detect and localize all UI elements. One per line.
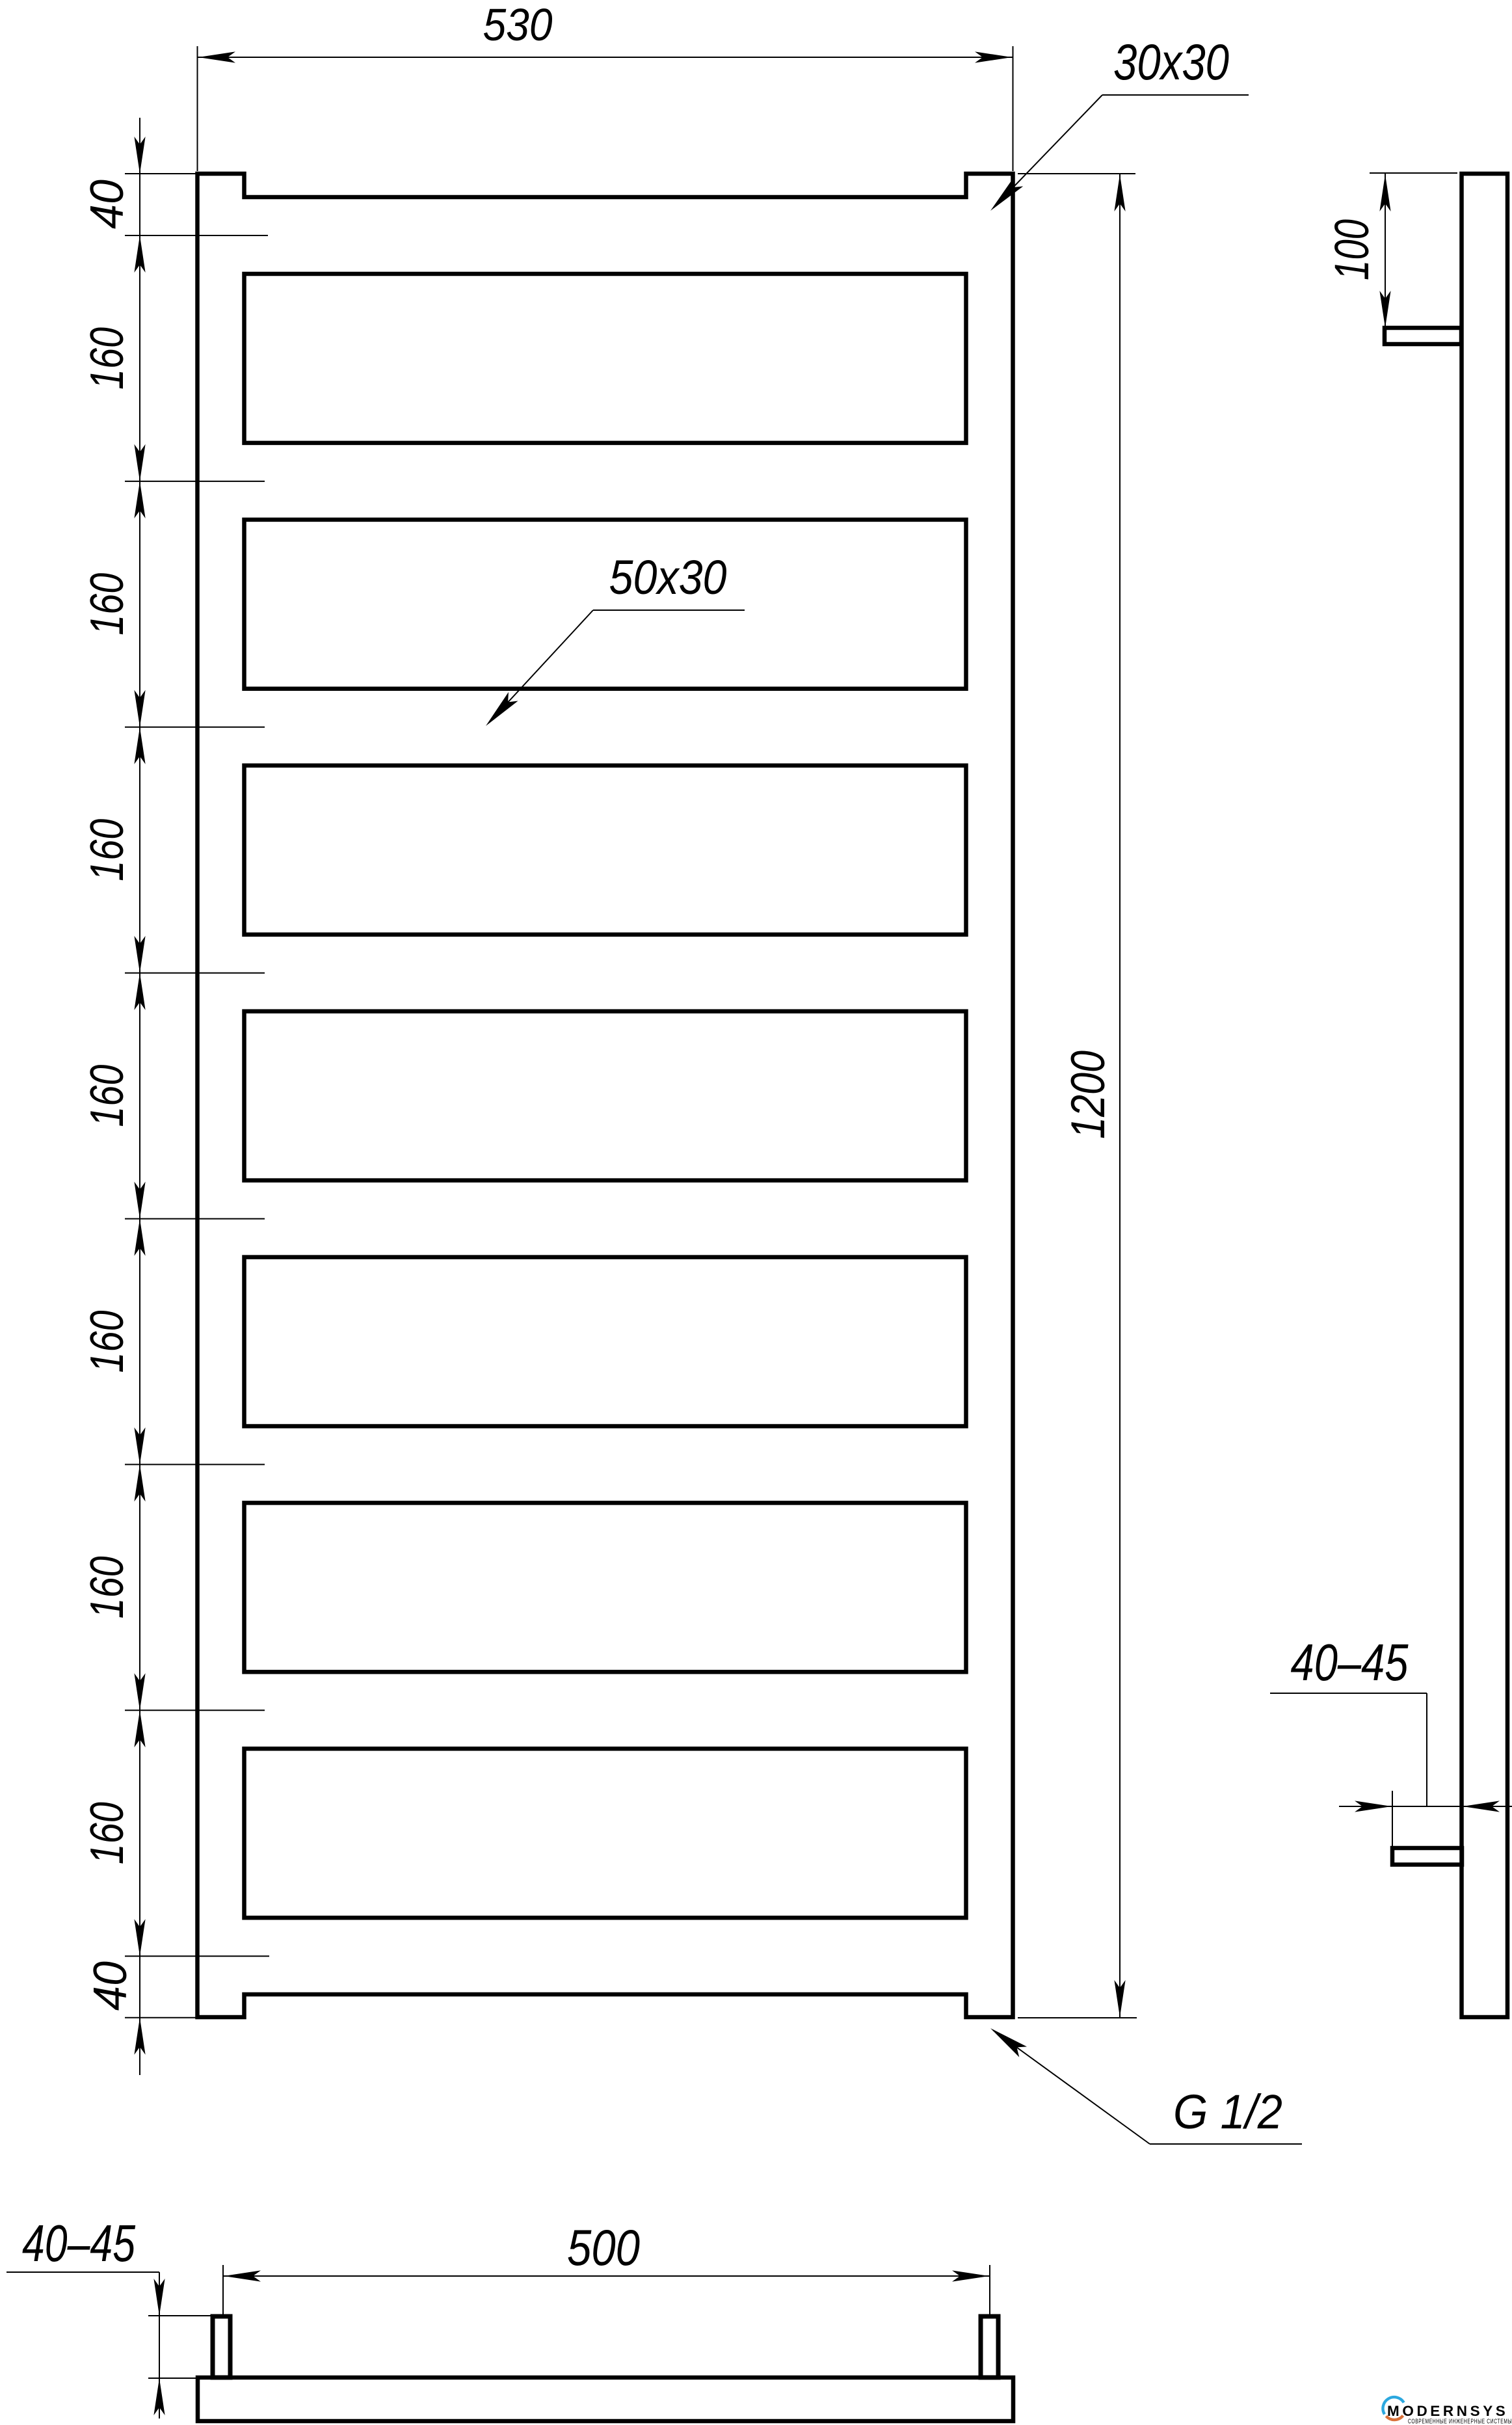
svg-text:40–45: 40–45 — [22, 2214, 135, 2272]
svg-text:СОВРЕМЕННЫЕ ИНЖЕНЕРНЫЕ СИСТЕМЫ: СОВРЕМЕННЫЕ ИНЖЕНЕРНЫЕ СИСТЕМЫ — [1408, 2417, 1512, 2425]
svg-text:40: 40 — [81, 180, 133, 229]
svg-text:500: 500 — [567, 2219, 640, 2276]
svg-text:40: 40 — [85, 1961, 137, 2011]
svg-text:160: 160 — [81, 1065, 133, 1127]
svg-text:50x30: 50x30 — [609, 550, 727, 604]
svg-text:530: 530 — [483, 0, 553, 50]
svg-text:1200: 1200 — [1062, 1051, 1115, 1139]
svg-text:160: 160 — [81, 327, 133, 390]
svg-text:40–45: 40–45 — [1291, 1633, 1409, 1691]
svg-text:160: 160 — [81, 819, 133, 881]
svg-text:160: 160 — [81, 1311, 133, 1373]
svg-text:160: 160 — [81, 1802, 133, 1864]
svg-text:G 1/2: G 1/2 — [1173, 2085, 1282, 2139]
svg-text:160: 160 — [81, 573, 133, 636]
svg-text:30x30: 30x30 — [1113, 33, 1229, 90]
svg-text:160: 160 — [81, 1556, 133, 1618]
svg-text:100: 100 — [1325, 219, 1379, 280]
